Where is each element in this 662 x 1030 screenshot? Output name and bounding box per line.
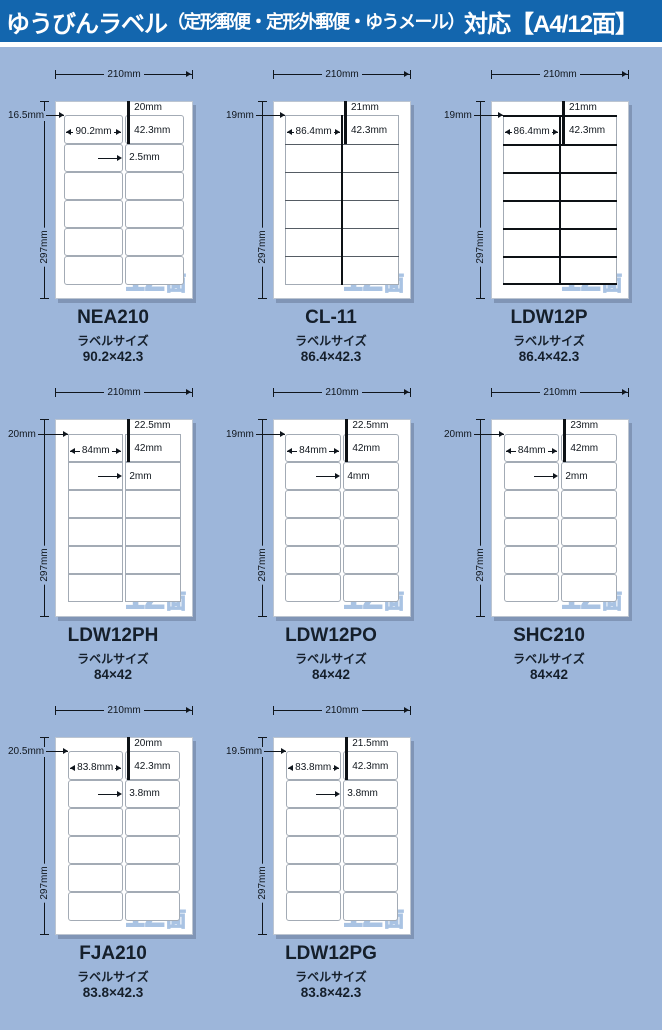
dimension-end-tick (40, 298, 49, 299)
sheet-height-dimension-label: 297mm (476, 545, 486, 584)
label-height-dimension-line (127, 434, 130, 462)
top-margin-dimension-line (345, 419, 348, 434)
arrowhead-right-icon (63, 431, 68, 437)
label-width-dimension-label: 86.4mm (503, 127, 560, 137)
sheet-width-dimension-text: 210mm (104, 70, 143, 80)
label-cell (64, 228, 123, 256)
sheet-height-dimension-line (44, 101, 45, 299)
arrowhead-right-icon (117, 473, 122, 479)
panel-caption: LDW12PH ラベルサイズ 84×42 (5, 625, 221, 682)
arrowhead-right-icon (281, 748, 286, 754)
label-cell (68, 490, 123, 518)
label-cell (343, 864, 398, 892)
dimension-end-tick (40, 101, 49, 102)
side-margin-dimension-label: 19mm (224, 430, 256, 440)
panel-size-caption: ラベルサイズ (223, 332, 439, 349)
column-gap-dimension-label: 2.5mm (129, 153, 160, 163)
panel-size-caption: ラベルサイズ (5, 650, 221, 667)
column-gap-dimension-line (316, 476, 336, 477)
arrowhead-right-icon (63, 748, 68, 754)
arrowhead-right-icon (117, 155, 122, 161)
sheet-width-dimension-label: 210mm (273, 388, 411, 398)
dimension-end-tick (40, 616, 49, 617)
sheet-width-dimension-text: 210mm (322, 70, 361, 80)
label-cell (286, 808, 341, 836)
arrowhead-right-icon (498, 112, 503, 118)
sheet-height-dimension-line (262, 101, 263, 299)
label-cell (125, 808, 180, 836)
label-cell (125, 518, 180, 546)
panel-size-value: 86.4×42.3 (223, 349, 439, 364)
label-cell (286, 836, 341, 864)
side-margin-dimension-label: 20mm (6, 430, 38, 440)
sheet-width-dimension-label: 210mm (55, 388, 193, 398)
panel-caption: SHC210 ラベルサイズ 84×42 (441, 625, 657, 682)
sheet-height-dimension-label: 297mm (40, 863, 50, 902)
label-cell (504, 490, 559, 518)
label-cell (68, 892, 123, 920)
panel-code: CL-11 (223, 307, 439, 329)
top-margin-dimension-label: 21.5mm (352, 739, 388, 749)
label-height-dimension-label: 42.3mm (569, 126, 605, 136)
sheet-diagram: 12面210mm297mm22.5mm42mm19mm84mm4mm (223, 379, 433, 625)
dimension-end-tick (258, 737, 267, 738)
label-cell (125, 490, 180, 518)
sheet-height-dimension-line (262, 419, 263, 617)
column-gap-dimension-label: 2mm (565, 472, 587, 482)
panels-grid: 12面210mm297mm20mm42.3mm16.5mm90.2mm2.5mm… (0, 47, 662, 1015)
panel-size-value: 86.4×42.3 (441, 349, 657, 364)
label-sheet-panel: 12面210mm297mm22.5mm42mm20mm84mm2mm LDW12… (5, 379, 221, 697)
panel-size-value: 90.2×42.3 (5, 349, 221, 364)
sheet-width-dimension-text: 210mm (540, 388, 579, 398)
top-margin-dimension-line (562, 101, 565, 115)
side-margin-dimension-label: 20.5mm (6, 747, 46, 757)
label-cell (125, 892, 180, 920)
sheet-diagram: 12面210mm297mm22.5mm42mm20mm84mm2mm (5, 379, 215, 625)
dimension-end-tick (476, 419, 485, 420)
label-width-dimension-text: 84mm (80, 446, 112, 456)
panel-size-caption: ラベルサイズ (5, 332, 221, 349)
label-width-dimension-text: 83.8mm (293, 763, 333, 773)
sheet-width-dimension-label: 210mm (55, 706, 193, 716)
label-height-dimension-label: 42.3mm (134, 762, 170, 772)
sheet-height-dimension-line (44, 737, 45, 935)
label-cell (343, 518, 398, 546)
label-cell (286, 864, 341, 892)
side-margin-dimension-label: 20mm (442, 430, 474, 440)
label-width-dimension-text: 84mm (516, 446, 548, 456)
dimension-end-tick (258, 419, 267, 420)
label-cell (504, 518, 559, 546)
label-cell (285, 546, 340, 574)
panel-code: LDW12P (441, 307, 657, 329)
arrowhead-right-icon (499, 431, 504, 437)
column-gap-dimension-line (316, 794, 336, 795)
sheet-diagram: 12面210mm297mm21.5mm42.3mm19.5mm83.8mm3.8… (223, 697, 433, 943)
panel-code: LDW12PG (223, 943, 439, 965)
sheet-width-dimension-text: 210mm (322, 706, 361, 716)
dimension-end-tick (476, 298, 485, 299)
dimension-end-tick (40, 419, 49, 420)
panel-size-caption: ラベルサイズ (5, 968, 221, 985)
panel-caption: LDW12PO ラベルサイズ 84×42 (223, 625, 439, 682)
sheet-height-dimension-line (480, 419, 481, 617)
label-height-dimension-line (127, 751, 130, 779)
label-width-dimension-label: 83.8mm (68, 763, 123, 773)
column-gap-dimension-label: 4mm (347, 472, 369, 482)
label-height-dimension-line (562, 115, 565, 143)
dimension-end-tick (40, 934, 49, 935)
arrowhead-right-icon (280, 431, 285, 437)
label-width-dimension-label: 84mm (68, 446, 123, 456)
label-sheet-panel: 12面210mm297mm21.5mm42.3mm19.5mm83.8mm3.8… (223, 697, 439, 1015)
panel-caption: NEA210 ラベルサイズ 90.2×42.3 (5, 307, 221, 364)
label-cell (561, 490, 616, 518)
label-cell (68, 864, 123, 892)
top-margin-dimension-line (563, 419, 566, 434)
panel-code: SHC210 (441, 625, 657, 647)
panel-code: LDW12PO (223, 625, 439, 647)
top-margin-dimension-label: 23mm (570, 421, 598, 431)
sheet-width-dimension-label: 210mm (491, 388, 629, 398)
panel-caption: FJA210 ラベルサイズ 83.8×42.3 (5, 943, 221, 1000)
dimension-end-tick (40, 737, 49, 738)
panel-caption: CL-11 ラベルサイズ 86.4×42.3 (223, 307, 439, 364)
label-cell (68, 574, 123, 602)
label-width-dimension-label: 84mm (285, 446, 340, 456)
label-cell (125, 546, 180, 574)
sheet-height-dimension-label: 297mm (258, 863, 268, 902)
label-cell (125, 200, 184, 228)
label-cell (125, 574, 180, 602)
label-cell (504, 574, 559, 602)
top-margin-dimension-line (127, 419, 130, 434)
top-margin-dimension-line (127, 737, 130, 751)
dimension-end-tick (258, 298, 267, 299)
label-cell (343, 574, 398, 602)
label-width-dimension-text: 86.4mm (294, 127, 334, 137)
sheet-height-dimension-label: 297mm (40, 227, 50, 266)
column-gap-dimension-line (98, 158, 118, 159)
label-cell (343, 546, 398, 574)
side-margin-dimension-label: 19mm (224, 111, 256, 121)
label-width-dimension-label: 84mm (504, 446, 559, 456)
sheet-height-dimension-label: 297mm (476, 227, 486, 266)
panel-code: NEA210 (5, 307, 221, 329)
label-cell (343, 490, 398, 518)
top-margin-dimension-label: 20mm (134, 103, 162, 113)
dimension-end-tick (258, 101, 267, 102)
label-width-dimension-label: 83.8mm (286, 763, 341, 773)
label-cell (343, 836, 398, 864)
label-height-dimension-label: 42mm (134, 444, 162, 454)
label-cell (125, 228, 184, 256)
label-sheet-panel: 12面210mm297mm22.5mm42mm19mm84mm4mm LDW12… (223, 379, 439, 697)
column-gap-dimension-label: 2mm (129, 472, 151, 482)
panel-caption: LDW12P ラベルサイズ 86.4×42.3 (441, 307, 657, 364)
label-cell (68, 518, 123, 546)
dimension-end-tick (258, 616, 267, 617)
sheet-width-dimension-text: 210mm (322, 388, 361, 398)
dimension-end-tick (476, 616, 485, 617)
center-separator-line (559, 115, 561, 284)
panel-size-caption: ラベルサイズ (223, 968, 439, 985)
side-margin-dimension-label: 16.5mm (6, 111, 46, 121)
label-cell (64, 256, 123, 284)
panel-size-value: 83.8×42.3 (223, 985, 439, 1000)
panel-size-value: 84×42 (5, 667, 221, 682)
top-margin-dimension-label: 22.5mm (134, 421, 170, 431)
arrowhead-right-icon (335, 473, 340, 479)
center-separator-line (341, 115, 343, 284)
label-height-dimension-line (563, 434, 566, 462)
column-gap-dimension-label: 3.8mm (347, 789, 378, 799)
sheet-height-dimension-line (44, 419, 45, 617)
column-gap-dimension-label: 3.8mm (129, 789, 160, 799)
header-title-main: ゆうびんラベル (6, 4, 167, 39)
header-title-paren: （定形郵便・定形外郵便・ゆうメール） (167, 8, 464, 34)
label-cell (561, 574, 616, 602)
sheet-height-dimension-label: 297mm (258, 545, 268, 584)
label-width-dimension-label: 90.2mm (64, 127, 123, 137)
label-height-dimension-line (345, 434, 348, 462)
sheet-width-dimension-label: 210mm (273, 706, 411, 716)
column-gap-dimension-line (534, 476, 554, 477)
top-margin-dimension-label: 21mm (351, 103, 379, 113)
label-height-dimension-label: 42.3mm (134, 126, 170, 136)
label-cell (68, 546, 123, 574)
label-cell (125, 256, 184, 284)
sheet-width-dimension-label: 210mm (491, 70, 629, 80)
arrowhead-right-icon (335, 791, 340, 797)
label-cell (64, 172, 123, 200)
label-sheet-panel: 12面210mm297mm21mm42.3mm19mm86.4mm LDW12P… (441, 61, 657, 379)
label-height-dimension-label: 42mm (570, 444, 598, 454)
sheet-diagram: 12面210mm297mm23mm42mm20mm84mm2mm (441, 379, 651, 625)
label-cell (343, 892, 398, 920)
dimension-end-tick (258, 934, 267, 935)
label-sheet-panel: 12面210mm297mm20mm42.3mm20.5mm83.8mm3.8mm… (5, 697, 221, 1015)
panel-size-caption: ラベルサイズ (441, 650, 657, 667)
sheet-diagram: 12面210mm297mm21mm42.3mm19mm86.4mm (441, 61, 651, 307)
label-sheet-panel: 12面210mm297mm21mm42.3mm19mm86.4mm CL-11 … (223, 61, 439, 379)
sheet-diagram: 12面210mm297mm21mm42.3mm19mm86.4mm (223, 61, 433, 307)
sheet-height-dimension-label: 297mm (258, 227, 268, 266)
sheet-width-dimension-text: 210mm (540, 70, 579, 80)
panel-caption: LDW12PG ラベルサイズ 83.8×42.3 (223, 943, 439, 1000)
column-gap-dimension-line (98, 794, 118, 795)
label-sheet-panel: 12面210mm297mm20mm42.3mm16.5mm90.2mm2.5mm… (5, 61, 221, 379)
label-cell (561, 518, 616, 546)
side-margin-dimension-label: 19mm (442, 111, 474, 121)
top-margin-dimension-label: 20mm (134, 739, 162, 749)
header-title-suffix: 対応【A4/12面】 (464, 4, 638, 39)
sheet-width-dimension-text: 210mm (104, 388, 143, 398)
sheet-height-dimension-label: 297mm (40, 545, 50, 584)
label-height-dimension-line (344, 115, 347, 143)
panel-code: FJA210 (5, 943, 221, 965)
label-cell (64, 200, 123, 228)
label-width-dimension-text: 86.4mm (512, 127, 552, 137)
label-cell (68, 836, 123, 864)
sheet-width-dimension-label: 210mm (273, 70, 411, 80)
sheet-diagram: 12面210mm297mm20mm42.3mm16.5mm90.2mm2.5mm (5, 61, 215, 307)
label-width-dimension-text: 83.8mm (75, 763, 115, 773)
label-height-dimension-line (345, 751, 348, 779)
label-cell (285, 574, 340, 602)
label-sheet-panel: 12面210mm297mm23mm42mm20mm84mm2mm SHC210 … (441, 379, 657, 697)
label-cell (125, 836, 180, 864)
panel-size-caption: ラベルサイズ (441, 332, 657, 349)
label-cell (343, 808, 398, 836)
panel-size-value: 84×42 (223, 667, 439, 682)
top-margin-dimension-line (127, 101, 130, 115)
label-cell (125, 172, 184, 200)
panel-size-caption: ラベルサイズ (223, 650, 439, 667)
arrowhead-right-icon (280, 112, 285, 118)
label-cell (286, 892, 341, 920)
label-cell (561, 546, 616, 574)
sheet-height-dimension-line (262, 737, 263, 935)
sheet-width-dimension-text: 210mm (104, 706, 143, 716)
top-margin-dimension-line (344, 101, 347, 115)
side-margin-dimension-label: 19.5mm (224, 747, 264, 757)
panel-code: LDW12PH (5, 625, 221, 647)
sheet-width-dimension-label: 210mm (55, 70, 193, 80)
top-margin-dimension-label: 22.5mm (352, 421, 388, 431)
arrowhead-right-icon (553, 473, 558, 479)
sheet-diagram: 12面210mm297mm20mm42.3mm20.5mm83.8mm3.8mm (5, 697, 215, 943)
panel-size-value: 84×42 (441, 667, 657, 682)
label-cell (125, 864, 180, 892)
top-margin-dimension-label: 21mm (569, 103, 597, 113)
label-cell (285, 490, 340, 518)
label-cell (285, 518, 340, 546)
panel-size-value: 83.8×42.3 (5, 985, 221, 1000)
header-bar: ゆうびんラベル （定形郵便・定形外郵便・ゆうメール） 対応【A4/12面】 (0, 0, 662, 47)
label-width-dimension-label: 86.4mm (285, 127, 342, 137)
label-width-dimension-text: 84mm (297, 446, 329, 456)
label-height-dimension-line (127, 115, 130, 143)
label-cell (68, 808, 123, 836)
column-gap-dimension-line (98, 476, 118, 477)
label-height-dimension-label: 42.3mm (351, 126, 387, 136)
label-width-dimension-text: 90.2mm (73, 127, 113, 137)
arrowhead-right-icon (59, 112, 64, 118)
top-margin-dimension-line (345, 737, 348, 751)
dimension-end-tick (476, 101, 485, 102)
label-height-dimension-label: 42.3mm (352, 762, 388, 772)
sheet-height-dimension-line (480, 101, 481, 299)
label-cell (504, 546, 559, 574)
arrowhead-right-icon (117, 791, 122, 797)
label-height-dimension-label: 42mm (352, 444, 380, 454)
